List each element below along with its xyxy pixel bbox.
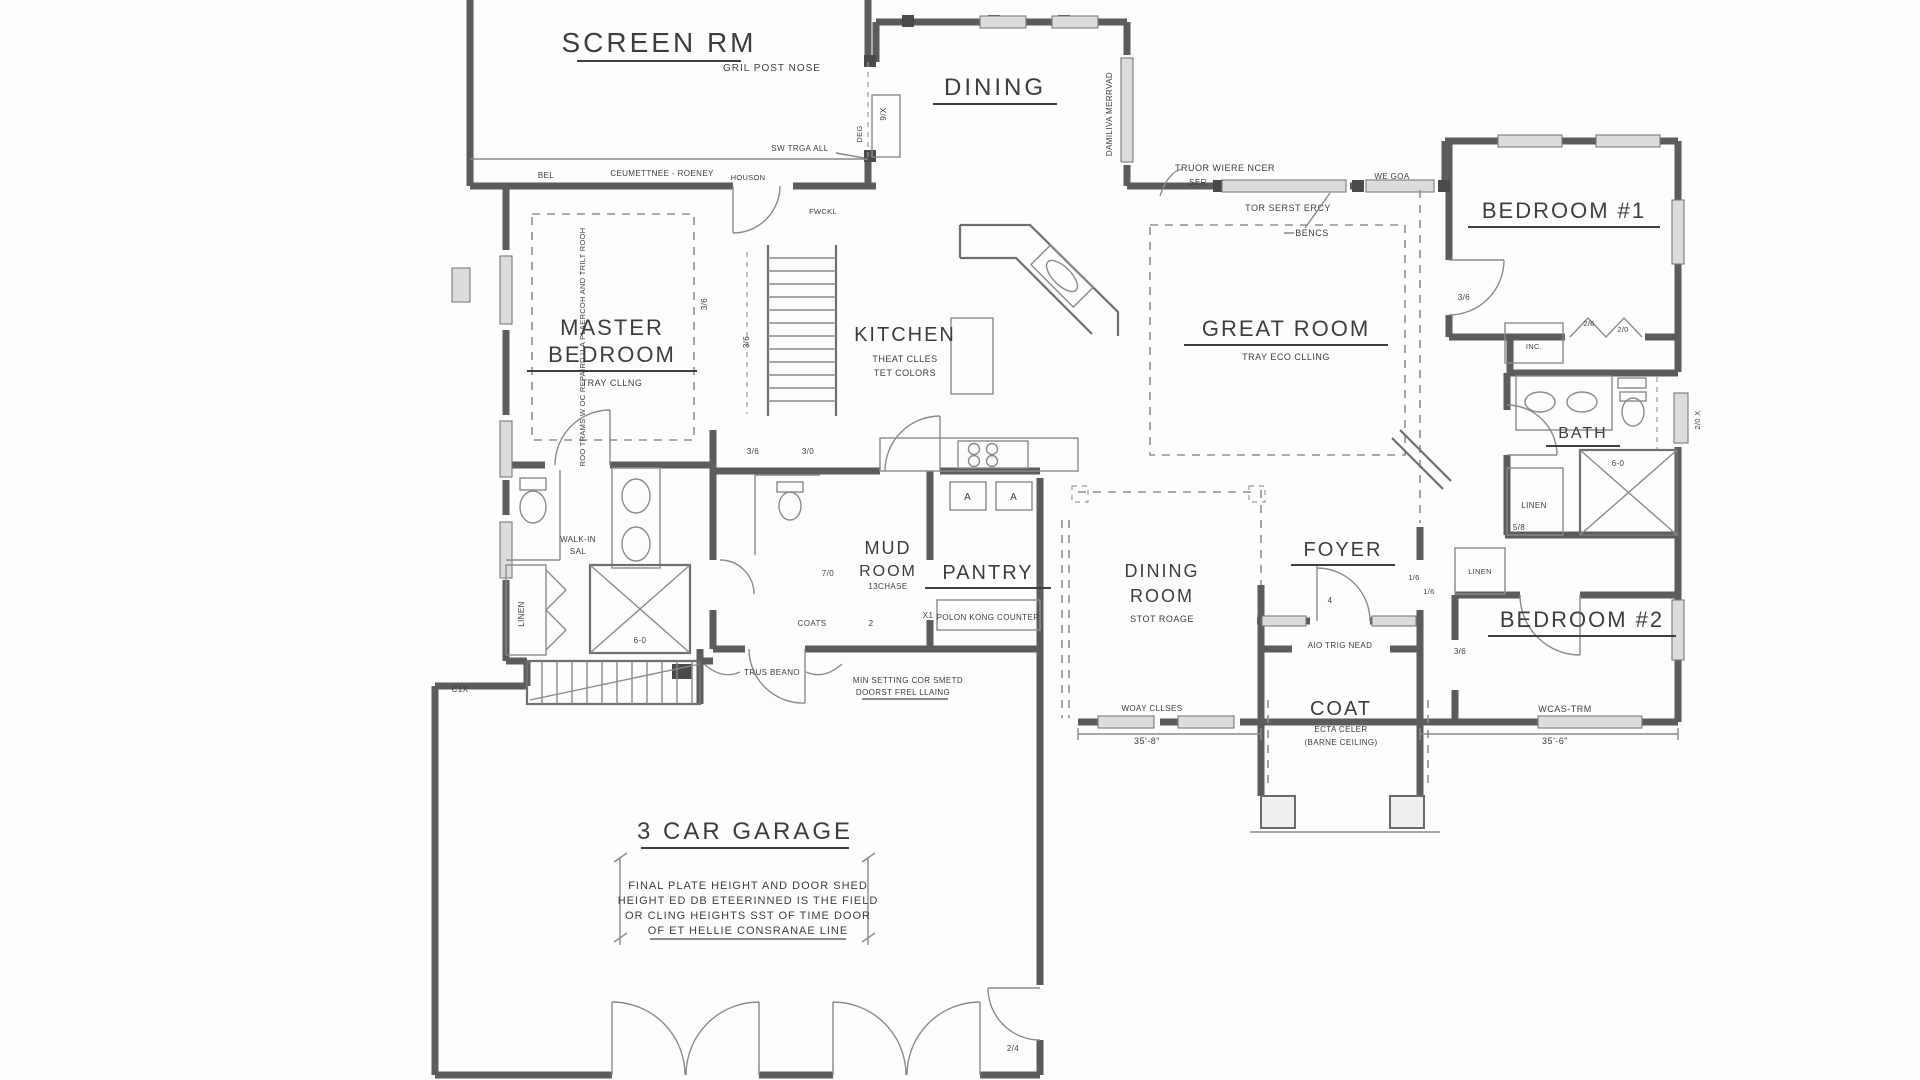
dim-left: 35'-8" bbox=[1134, 736, 1160, 746]
sink-icon bbox=[1567, 392, 1597, 412]
porch-pedestal bbox=[1261, 796, 1295, 828]
window-icon bbox=[1222, 180, 1346, 192]
we-goa-note: WE GOA bbox=[1374, 172, 1410, 181]
mud-room-label-2: ROOM bbox=[859, 563, 917, 580]
toilet-icon bbox=[1622, 398, 1644, 426]
window-icon bbox=[1052, 16, 1098, 28]
door-size: 2/0 bbox=[1617, 325, 1628, 334]
mud-wc-walls bbox=[755, 475, 820, 555]
dining-room-label-2: ROOM bbox=[1130, 586, 1194, 606]
great-room-sub: TRAY ECO CLLING bbox=[1242, 352, 1330, 362]
kitchen-sub2: TET COLORS bbox=[874, 368, 936, 378]
window-icon bbox=[1674, 393, 1688, 443]
bedroom1-label: BEDROOM #1 bbox=[1482, 198, 1646, 223]
bencs-note: BENCS bbox=[1295, 228, 1329, 238]
garage-door1-arc bbox=[612, 1002, 759, 1075]
door-size: 5/8 bbox=[1513, 523, 1525, 532]
tub-size: 6-0 bbox=[634, 636, 647, 645]
master-bedroom-label-1: MASTER bbox=[560, 315, 664, 340]
window-icon bbox=[1596, 135, 1660, 147]
bath-linen-label: LINEN bbox=[1521, 501, 1547, 510]
master-vanity bbox=[612, 468, 660, 568]
window-icon bbox=[452, 268, 470, 302]
main-stair-treads bbox=[768, 258, 836, 401]
front-door-arc bbox=[1317, 566, 1370, 621]
master-linen-label: LINEN bbox=[517, 601, 526, 627]
door-size: 3/6 bbox=[700, 298, 709, 310]
sink-icon bbox=[622, 479, 650, 513]
pantry-door-arc bbox=[885, 416, 940, 471]
door-size: 4 bbox=[1328, 596, 1333, 605]
bel-note: BEL bbox=[538, 171, 554, 180]
screen-door-arc bbox=[733, 186, 780, 233]
doors bbox=[555, 186, 1580, 1075]
sink-icon bbox=[622, 527, 650, 561]
window-icon bbox=[1538, 716, 1642, 728]
mud-room-label-1: MUD bbox=[865, 538, 912, 558]
burner-icon bbox=[969, 444, 980, 455]
exterior-walls bbox=[435, 0, 1678, 1075]
kitchen-sub1: THEAT CLLES bbox=[872, 354, 937, 364]
door-size: 2/6 bbox=[1583, 319, 1594, 328]
dining-window-label: DAMILIVA MERRVAD bbox=[1105, 72, 1114, 156]
ceiling-trim-note: CEUMETTNEE - ROENEY bbox=[610, 169, 714, 178]
wall-posts bbox=[672, 15, 1450, 679]
door-size: 7/0 bbox=[822, 569, 834, 578]
toilet-icon bbox=[520, 491, 546, 523]
master-wall-note: ROO TRAMS W OC REPAIRD U A PLAERCOH AND … bbox=[578, 228, 587, 467]
wcas-trim-label: WCAS-TRM bbox=[1538, 704, 1592, 714]
window-icon bbox=[1121, 58, 1133, 162]
appliance-a2-label: A bbox=[1010, 492, 1018, 503]
sink-icon bbox=[1525, 392, 1555, 412]
min-setting-note-1: MIN SETTING COR SMETD bbox=[853, 676, 963, 685]
houson-note: HOUSON bbox=[731, 173, 766, 182]
dining-room-label-1: DINING bbox=[1125, 561, 1200, 581]
c1x-note: C1X bbox=[452, 685, 469, 694]
dining-column-dash bbox=[1072, 486, 1088, 502]
bath-label: BATH bbox=[1558, 425, 1607, 442]
bath-tub-x bbox=[1580, 450, 1677, 535]
grill-post-frame bbox=[872, 95, 900, 157]
mud-room-sub: 13CHASE bbox=[868, 582, 907, 591]
window-icon bbox=[980, 16, 1026, 28]
garage-label: 3 CAR GARAGE bbox=[637, 818, 853, 845]
wall-post-icon bbox=[1438, 180, 1450, 192]
basement-stair-treads bbox=[542, 661, 692, 704]
ser-note: SER bbox=[1189, 178, 1207, 187]
hall-coat-walls bbox=[1257, 527, 1420, 796]
door-size: 2 bbox=[869, 619, 874, 628]
foyer-note: AIO TRIG NEAD bbox=[1308, 641, 1373, 650]
garage-note-2: HEIGHT ED DB ETEERINNED IS THE FIELD bbox=[618, 895, 879, 907]
bath-fixtures bbox=[1455, 318, 1677, 594]
woay-note: WOAY CLLSES bbox=[1121, 704, 1182, 713]
garage-door2-arc bbox=[833, 1002, 980, 1075]
dim-line-left bbox=[1078, 728, 1261, 740]
hall-linen-label: LINEN bbox=[1468, 567, 1492, 576]
bifold-door-icon bbox=[1570, 318, 1642, 337]
mud-wc-tank bbox=[777, 482, 803, 492]
inc-label: INC. bbox=[1526, 342, 1542, 351]
sw-trim-leader bbox=[836, 153, 864, 158]
burner-icon bbox=[969, 456, 980, 467]
coat-sub2: (BARNE CEILING) bbox=[1304, 738, 1377, 747]
range-counter bbox=[880, 438, 1078, 471]
window-icon bbox=[1672, 600, 1684, 660]
wall-post-icon bbox=[902, 15, 914, 27]
wall-post-icon bbox=[1352, 180, 1364, 192]
kitchen-sink bbox=[1031, 245, 1093, 307]
bump-window-note: 2/0 X bbox=[1693, 410, 1702, 429]
deg-note: DEG bbox=[855, 125, 864, 142]
coat-sub1: ECTA CELER bbox=[1314, 725, 1367, 734]
bedroom2-label: BEDROOM #2 bbox=[1500, 607, 1664, 632]
coats-label: COATS bbox=[798, 619, 827, 628]
mud-wc-door-arc bbox=[720, 560, 754, 594]
door-size: 3/6 bbox=[1454, 647, 1466, 656]
window-icon bbox=[1498, 135, 1562, 147]
garage-note-4: OF ET HELLIE CONSRANAE LINE bbox=[648, 925, 848, 937]
dining-label: DINING bbox=[944, 74, 1046, 101]
window-icon bbox=[1098, 716, 1154, 728]
porch-elements bbox=[1250, 796, 1440, 832]
burner-icon bbox=[987, 444, 998, 455]
screen-room-label: SCREEN RM bbox=[561, 27, 756, 58]
door-size: 3/6 bbox=[742, 336, 751, 348]
window-icon bbox=[1366, 180, 1434, 192]
door-size: 3/6 bbox=[1458, 293, 1470, 302]
nine-x-note: 9/X bbox=[879, 107, 888, 120]
foyer-label: FOYER bbox=[1304, 539, 1383, 561]
window-icon bbox=[1672, 200, 1684, 264]
min-setting-note-2: DOORST FREL LLAING bbox=[856, 688, 950, 697]
burner-icon bbox=[987, 456, 998, 467]
dim-right: 35'-6" bbox=[1542, 736, 1568, 746]
tub-size: 6-0 bbox=[1612, 459, 1625, 468]
door-size: 2/4 bbox=[1007, 1044, 1019, 1053]
walkin-label-1: WALK-IN bbox=[560, 535, 596, 544]
fwckl-note: FWCKL bbox=[809, 207, 837, 216]
bath-wc-tank bbox=[1620, 392, 1646, 401]
window-icon bbox=[1178, 716, 1234, 728]
door-size: 3/0 bbox=[802, 447, 814, 456]
bath-mirror bbox=[1618, 378, 1646, 388]
appliance-a1-label: A bbox=[964, 492, 972, 503]
dining-column-dash bbox=[1249, 486, 1265, 502]
door-size: X1 bbox=[923, 611, 934, 620]
floor-plan-page: SCREEN RM DINING BEDROOM #1 MASTER BEDRO… bbox=[0, 0, 1920, 1080]
window-icon bbox=[500, 421, 512, 477]
fireplace-corner bbox=[1392, 430, 1451, 489]
kitchen-label: KITCHEN bbox=[854, 324, 956, 346]
window-icon bbox=[500, 256, 512, 324]
basement-stair-rail bbox=[530, 664, 700, 700]
door-size: 1/6 bbox=[1423, 587, 1434, 596]
walkin-label-2: SAL bbox=[570, 547, 586, 556]
kitchen-island bbox=[951, 318, 993, 394]
window-icon bbox=[1262, 616, 1306, 626]
floor-plan-svg: SCREEN RM DINING BEDROOM #1 MASTER BEDRO… bbox=[0, 0, 1920, 1080]
garage-walls bbox=[435, 649, 1040, 1075]
bedroom1-door-arc bbox=[1449, 260, 1504, 315]
master-wc-tank bbox=[520, 478, 546, 490]
bifold-door-icon bbox=[546, 570, 566, 650]
sw-trim-note: SW TRGA ALL bbox=[771, 144, 828, 153]
pantry-note: POLON KONG COUNTER bbox=[937, 613, 1040, 622]
toilet-icon bbox=[779, 492, 801, 520]
door-size: 3/6 bbox=[747, 447, 759, 456]
master-wc-walls bbox=[506, 470, 560, 560]
master-suite-fixtures bbox=[506, 468, 820, 655]
tor-serst-note: TOR SERST ERCY bbox=[1245, 203, 1331, 213]
kitchen-counter bbox=[960, 225, 1118, 336]
wall-post-icon bbox=[864, 55, 876, 67]
porch-pedestal bbox=[1390, 796, 1424, 828]
garage-side-door-arc bbox=[988, 988, 1040, 1040]
window-icon bbox=[1372, 616, 1416, 626]
truor-note: TRUOR WIERE NCER bbox=[1175, 163, 1275, 173]
door-size: 1/6 bbox=[1408, 573, 1419, 582]
master-bedroom-label-2: BEDROOM bbox=[548, 342, 676, 367]
garage-note-3: OR CLING HEIGHTS SST OF TIME DOOR bbox=[625, 910, 871, 922]
dining-room-sub: STOT ROAGE bbox=[1130, 614, 1194, 624]
bencs-leader bbox=[1284, 193, 1330, 233]
master-bedroom-sub: TRAY CLLNG bbox=[582, 378, 643, 388]
coat-label: COAT bbox=[1310, 698, 1372, 720]
grill-post-note: GRIL POST NOSE bbox=[723, 63, 821, 74]
truss-bearing-note: TRUS BEANO bbox=[744, 668, 800, 677]
garage-note-1: FINAL PLATE HEIGHT AND DOOR SHED bbox=[628, 880, 868, 892]
wall-post-icon bbox=[864, 150, 876, 162]
great-room-label: GREAT ROOM bbox=[1202, 316, 1370, 341]
pantry-label: PANTRY bbox=[942, 562, 1033, 584]
